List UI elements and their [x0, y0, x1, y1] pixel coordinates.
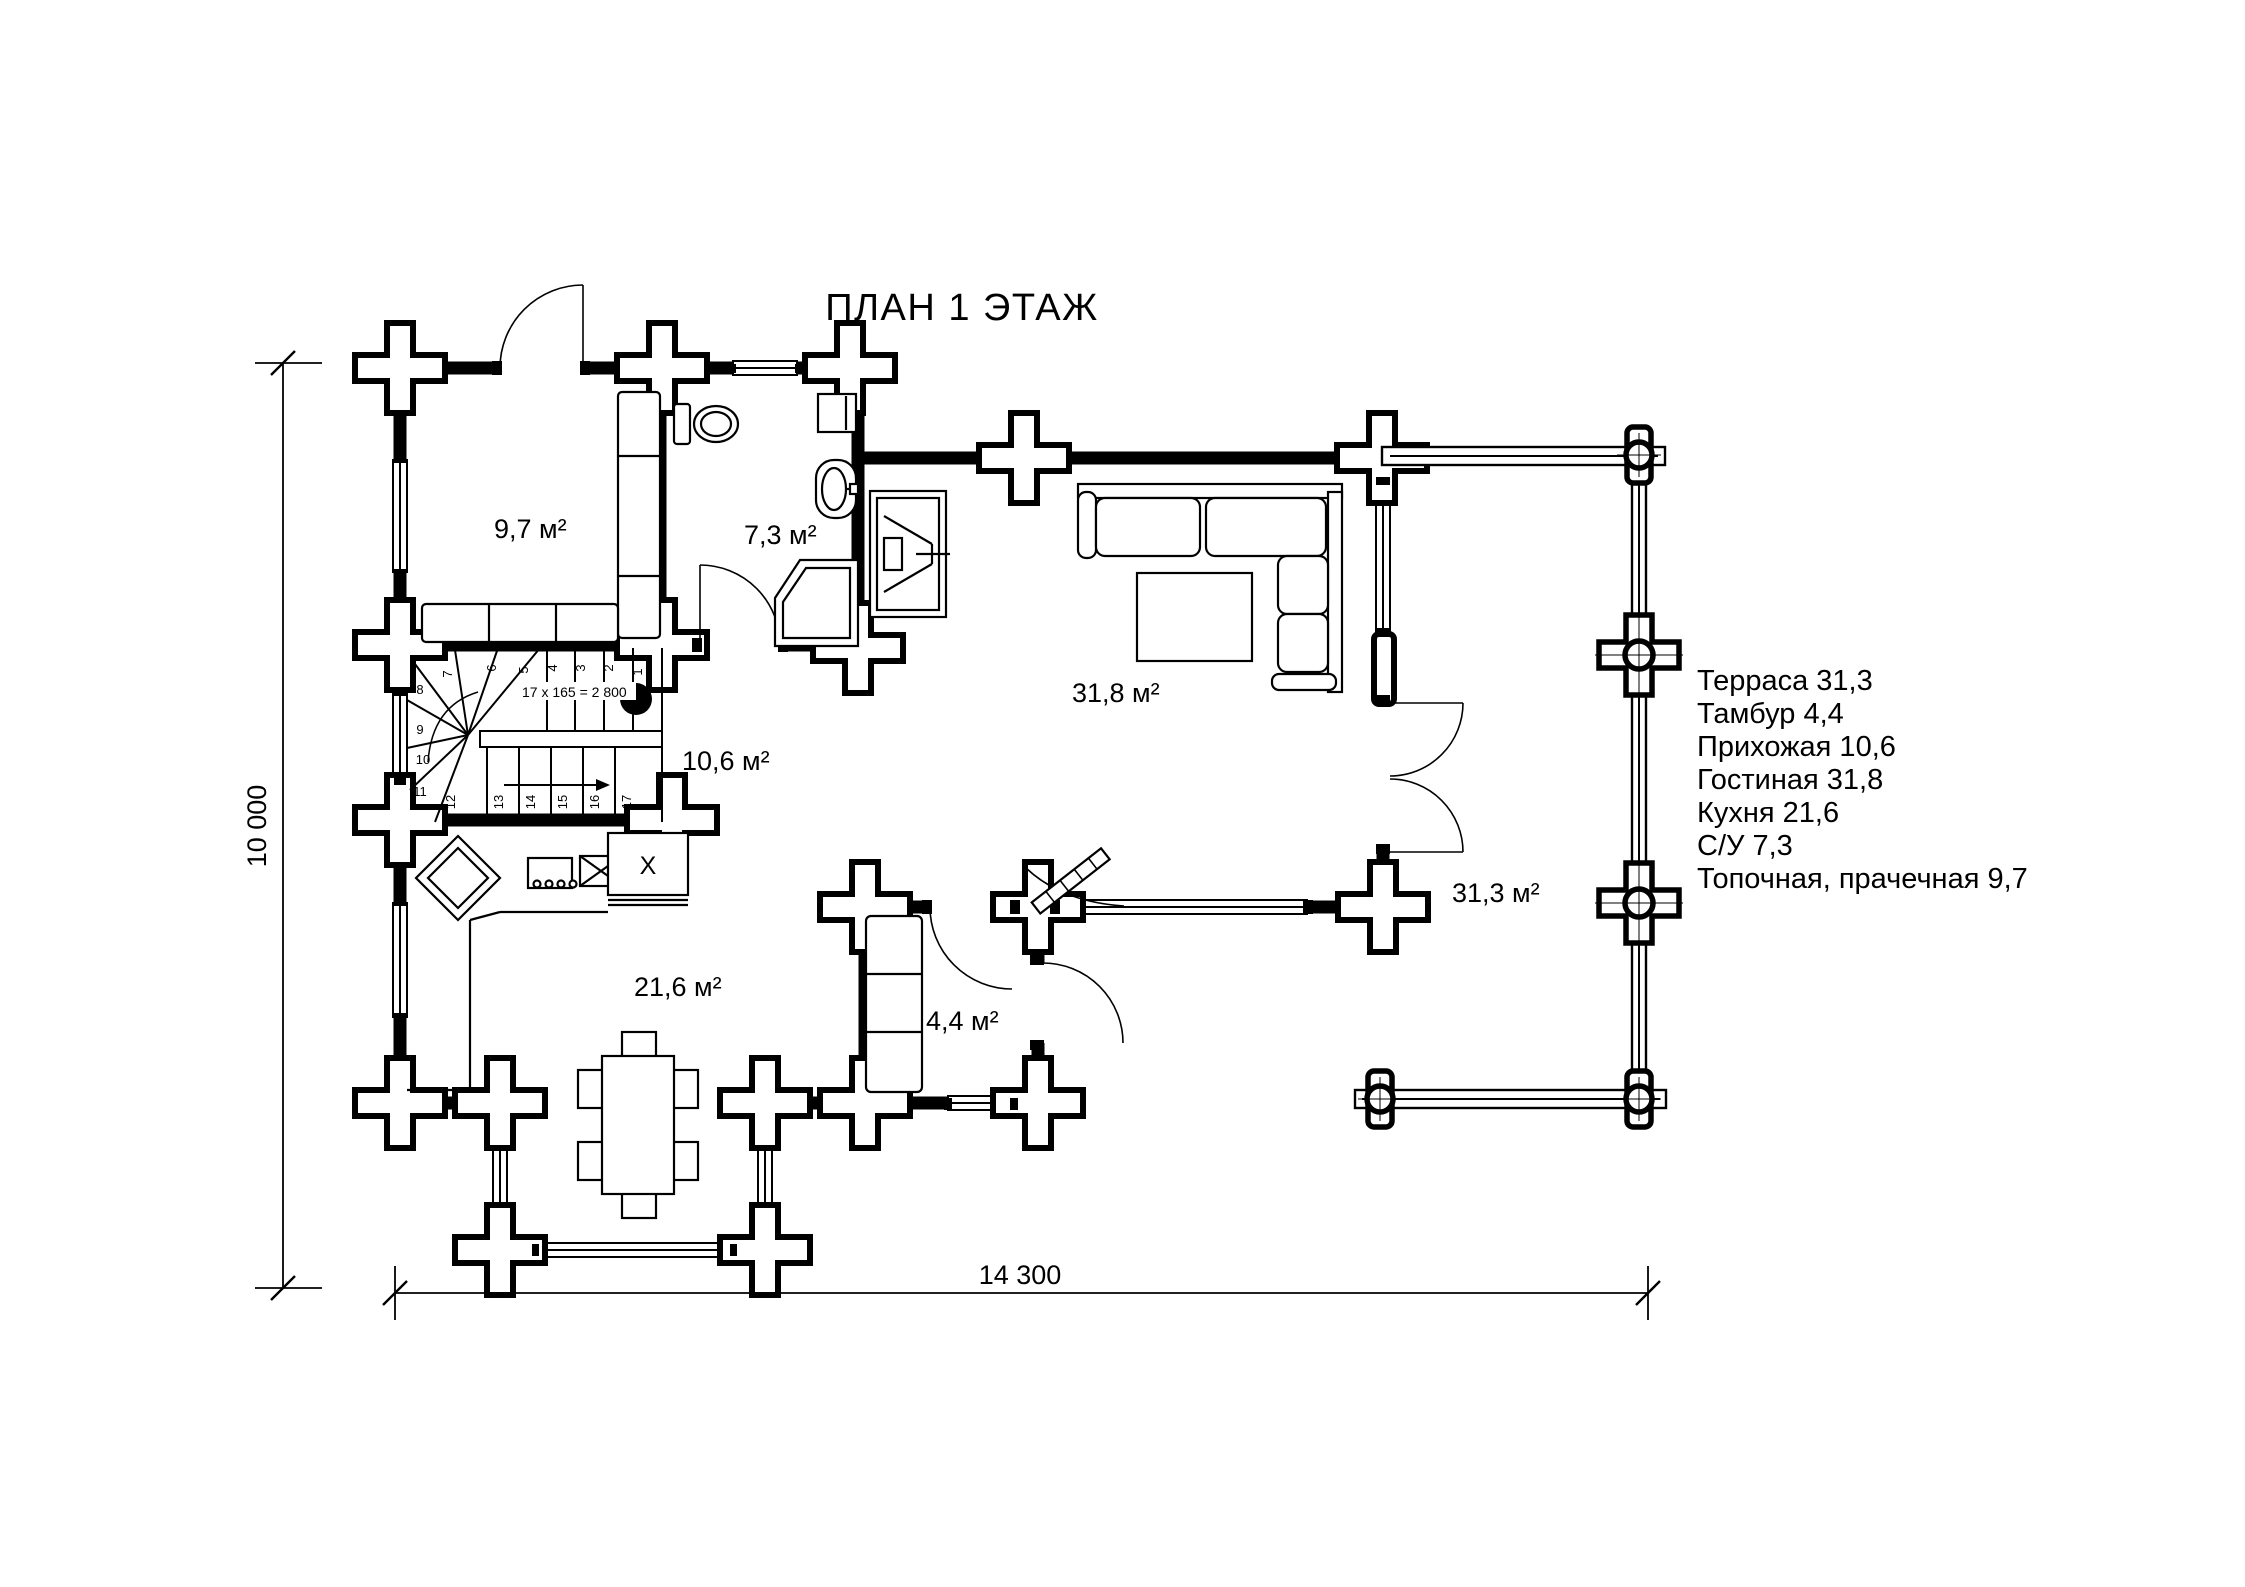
dimension-lines	[255, 351, 1660, 1320]
door-bathroom	[700, 565, 780, 645]
legend-item-kitchen: Кухня 21,6	[1697, 797, 1839, 829]
room-label-vestibule: 4,4 м²	[926, 1006, 999, 1036]
legend-item-terrace: Терраса 31,3	[1697, 665, 1873, 697]
dimension-label-width: 14 300	[979, 1260, 1062, 1290]
terrace-post	[1595, 859, 1683, 947]
floor-plan-page: ПЛАН 1 ЭТАЖ Терраса 31,3 Тамбур 4,4 Прих…	[0, 0, 2245, 1587]
terrace-post	[1358, 1071, 1402, 1127]
stair-step-number: 16	[587, 795, 602, 809]
terrace-post	[1617, 427, 1661, 483]
room-label-boiler-laundry: 9,7 м²	[494, 514, 567, 544]
stair-step-number: 3	[573, 664, 588, 671]
double-door-terrace	[1390, 703, 1463, 852]
stair-step-number: 7	[440, 670, 455, 677]
page-title: ПЛАН 1 ЭТАЖ	[825, 287, 1098, 329]
room-label-living-room: 31,8 м²	[1072, 678, 1160, 708]
legend-item-wc: С/У 7,3	[1697, 830, 1793, 862]
window-kitchen-west	[393, 903, 407, 1017]
log-cross-joints	[355, 323, 1428, 1295]
stair-step-number: 2	[601, 664, 616, 671]
bathroom-sink	[816, 460, 860, 518]
dining-table-set	[578, 1032, 698, 1218]
legend-item-living: Гостиная 31,8	[1697, 764, 1883, 796]
kitchen-counter	[407, 836, 622, 1090]
legend-item-boiler: Топочная, прачечная 9,7	[1697, 863, 2028, 895]
legend-item-hall: Прихожая 10,6	[1697, 731, 1896, 763]
fireplace	[870, 491, 950, 617]
stair-step-number: 8	[416, 682, 423, 697]
legend-item-vestibule: Тамбур 4,4	[1697, 698, 1844, 730]
window-bathroom-north	[733, 361, 797, 375]
door-laundry	[500, 285, 583, 368]
stair-step-number: 5	[516, 666, 531, 673]
stair-formula: 17 x 165 = 2 800	[522, 684, 627, 700]
terrace-post	[1617, 1071, 1661, 1127]
window-hall-west	[393, 693, 407, 782]
window-bay-south	[538, 1243, 732, 1257]
corner-shower	[775, 560, 858, 646]
stair-step-number: 13	[491, 795, 506, 809]
room-label-entrance-hall: 10,6 м²	[682, 746, 770, 776]
stair-step-number: 14	[523, 795, 538, 809]
wall-pillar	[1374, 634, 1394, 704]
room-label-bathroom: 7,3 м²	[744, 520, 817, 550]
legend: Терраса 31,3 Тамбур 4,4 Прихожая 10,6 Го…	[1697, 665, 2028, 895]
window-laundry-west	[393, 460, 407, 572]
stair-divider	[480, 731, 662, 747]
terrace-rail-east	[1632, 465, 1646, 1090]
dimension-label-height: 10 000	[242, 785, 272, 868]
stair-step-number: 17	[619, 795, 634, 809]
terrace-rail-north	[1382, 447, 1665, 465]
stair-step-number: 12	[443, 795, 458, 809]
floor-plan-drawing: ПЛАН 1 ЭТАЖ Терраса 31,3 Тамбур 4,4 Прих…	[0, 0, 2245, 1587]
terrace	[1355, 427, 1683, 1127]
toilet	[674, 404, 738, 444]
stair-step-number: 6	[484, 664, 499, 671]
washing-machine	[818, 394, 856, 432]
room-label-kitchen: 21,6 м²	[634, 972, 722, 1002]
room-label-terrace: 31,3 м²	[1452, 878, 1540, 908]
stair-step-number: 4	[545, 664, 560, 671]
stair-step-number: 10	[416, 752, 430, 767]
refrigerator-label: X	[640, 852, 657, 880]
coffee-table	[1137, 573, 1252, 661]
vestibule-wardrobe	[866, 916, 922, 1092]
stair-step-number: 1	[630, 668, 645, 675]
terrace-post	[1595, 611, 1683, 699]
stair-step-number: 9	[416, 722, 423, 737]
stair-step-number: 11	[413, 784, 427, 799]
door-vestibule-entrance	[1043, 963, 1123, 1043]
stair-step-number: 15	[555, 795, 570, 809]
